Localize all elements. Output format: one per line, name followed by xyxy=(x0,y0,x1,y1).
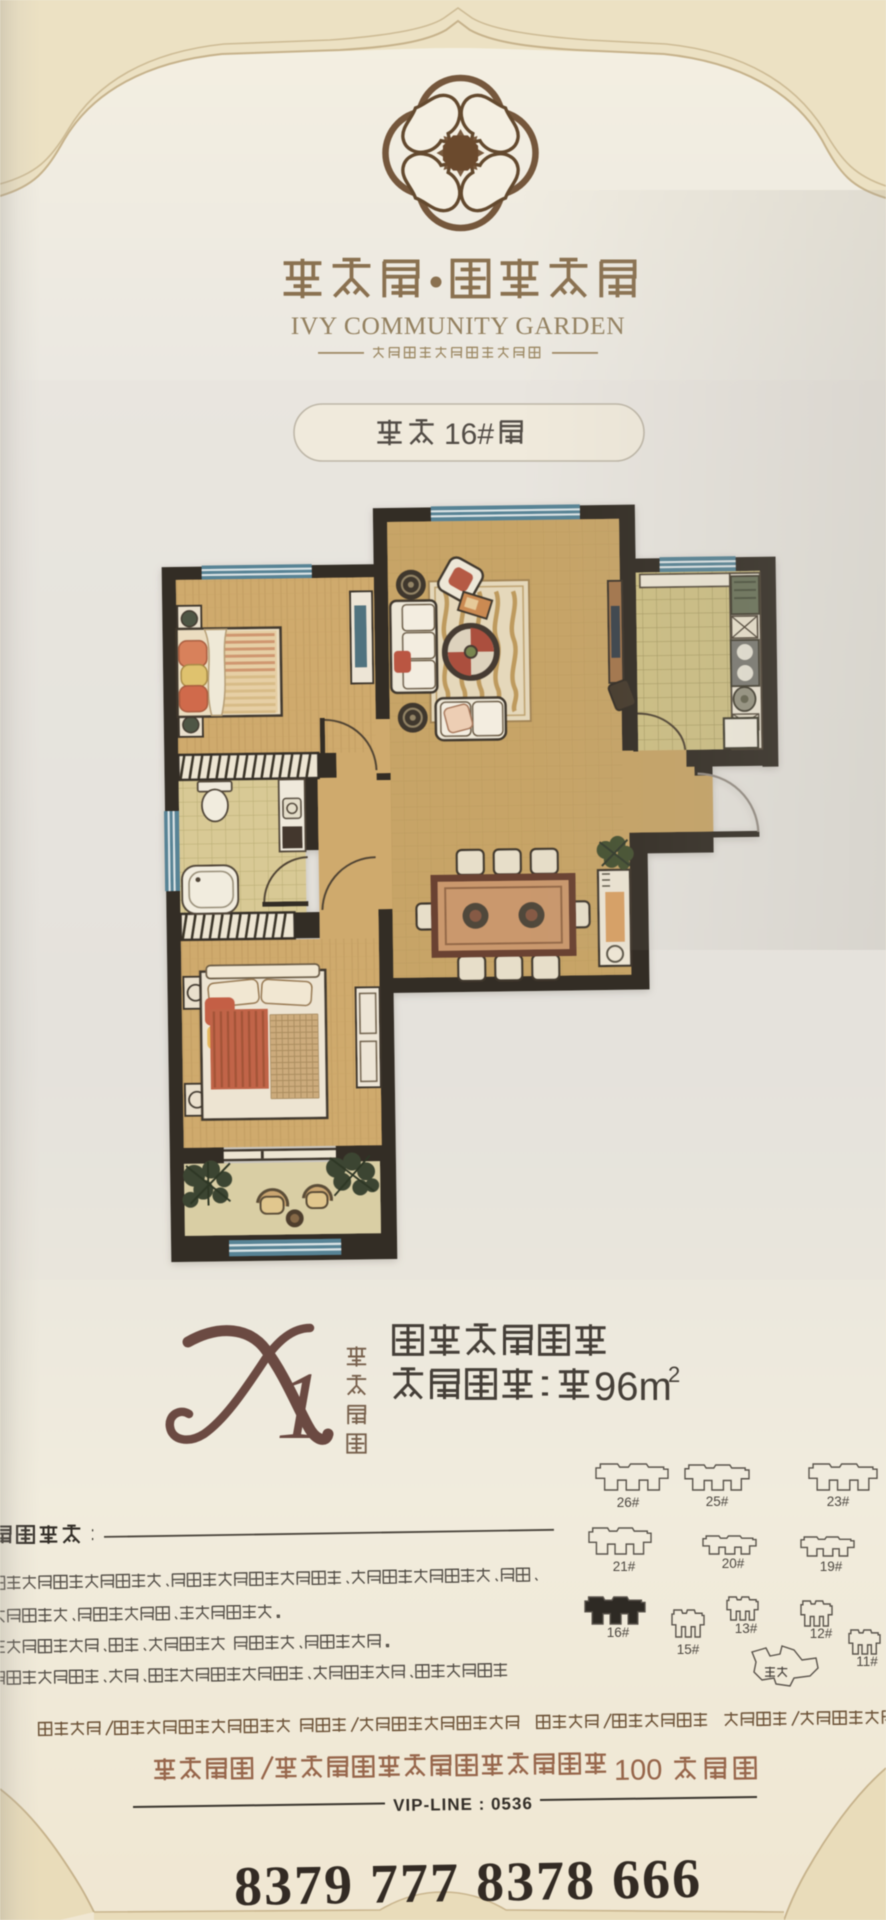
svg-text:15#: 15# xyxy=(677,1642,700,1657)
svg-text:13#: 13# xyxy=(735,1621,758,1636)
svg-text:25#: 25# xyxy=(706,1494,729,1509)
svg-text:2: 2 xyxy=(668,1362,680,1387)
svg-text:12#: 12# xyxy=(810,1626,833,1641)
svg-text:8379 777 8378 666: 8379 777 8378 666 xyxy=(234,1848,703,1918)
svg-text:26#: 26# xyxy=(617,1495,640,1510)
svg-text:96m: 96m xyxy=(594,1365,672,1409)
svg-text:100: 100 xyxy=(614,1754,663,1787)
svg-text:23#: 23# xyxy=(827,1494,850,1509)
svg-text:1: 1 xyxy=(276,1352,324,1459)
svg-text:19#: 19# xyxy=(820,1559,843,1574)
svg-text:21#: 21# xyxy=(613,1559,636,1574)
svg-text:20#: 20# xyxy=(722,1556,745,1571)
svg-text:11#: 11# xyxy=(856,1654,878,1669)
svg-text:VIP-LINE : 0536: VIP-LINE : 0536 xyxy=(393,1794,533,1815)
svg-text:16#: 16# xyxy=(607,1625,630,1640)
